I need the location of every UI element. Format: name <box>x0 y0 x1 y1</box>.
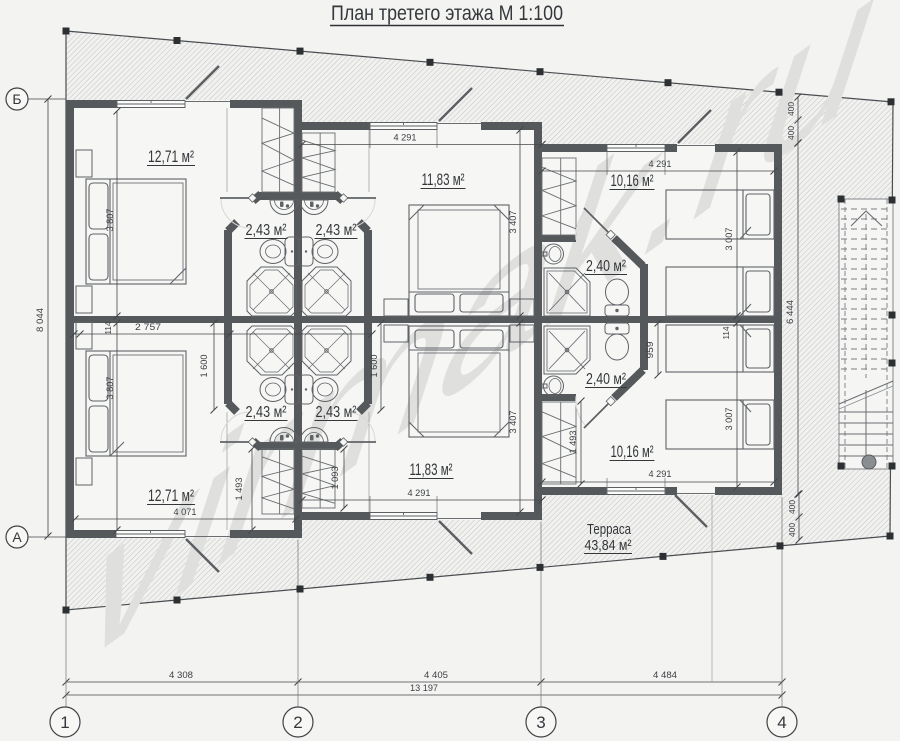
svg-text:4: 4 <box>777 713 786 732</box>
svg-text:114: 114 <box>721 326 731 339</box>
svg-text:2,40 м²: 2,40 м² <box>586 258 627 275</box>
svg-text:1 600: 1 600 <box>369 355 380 378</box>
svg-text:400: 400 <box>786 102 796 116</box>
svg-text:3 407: 3 407 <box>508 211 519 234</box>
svg-text:1 600: 1 600 <box>199 355 210 378</box>
svg-text:3: 3 <box>536 713 545 732</box>
svg-text:3 807: 3 807 <box>105 377 116 400</box>
svg-text:400: 400 <box>787 523 797 537</box>
svg-text:43,84 м²: 43,84 м² <box>585 537 632 554</box>
svg-text:12,71 м²: 12,71 м² <box>148 486 194 505</box>
svg-text:2,43 м²: 2,43 м² <box>316 222 358 239</box>
svg-text:4 291: 4 291 <box>408 488 431 499</box>
svg-text:10,16 м²: 10,16 м² <box>611 442 654 461</box>
svg-text:400: 400 <box>787 500 797 514</box>
svg-text:2,43 м²: 2,43 м² <box>316 404 358 421</box>
svg-text:2,43 м²: 2,43 м² <box>246 222 288 239</box>
svg-text:10,16 м²: 10,16 м² <box>611 171 654 190</box>
svg-text:4 291: 4 291 <box>649 159 672 170</box>
svg-text:1 093: 1 093 <box>330 467 341 490</box>
svg-text:4 291: 4 291 <box>649 469 672 480</box>
svg-text:А: А <box>12 529 22 545</box>
svg-text:4 071: 4 071 <box>174 507 197 518</box>
svg-text:Терраса: Терраса <box>587 521 631 538</box>
svg-text:Б: Б <box>12 91 21 107</box>
svg-text:2,40 м²: 2,40 м² <box>586 371 627 388</box>
svg-text:1: 1 <box>60 713 69 732</box>
svg-text:3 407: 3 407 <box>508 411 519 434</box>
svg-text:8 044: 8 044 <box>35 308 46 332</box>
svg-text:13 197: 13 197 <box>410 683 438 694</box>
svg-text:1 493: 1 493 <box>234 478 245 501</box>
svg-text:114: 114 <box>103 321 113 334</box>
svg-text:4 308: 4 308 <box>169 670 193 681</box>
svg-text:3 007: 3 007 <box>724 228 735 251</box>
svg-text:3 007: 3 007 <box>724 408 735 431</box>
svg-text:11,83 м²: 11,83 м² <box>422 170 465 189</box>
svg-text:11,83 м²: 11,83 м² <box>410 460 453 479</box>
svg-text:400: 400 <box>786 126 796 140</box>
svg-text:2: 2 <box>293 713 302 732</box>
svg-text:4 484: 4 484 <box>653 670 677 681</box>
svg-text:2,43 м²: 2,43 м² <box>246 404 288 421</box>
svg-text:4 405: 4 405 <box>424 670 448 681</box>
svg-text:1 493: 1 493 <box>568 431 579 454</box>
svg-text:2 757: 2 757 <box>135 322 161 333</box>
svg-text:3 807: 3 807 <box>105 209 116 232</box>
svg-text:6 444: 6 444 <box>785 300 796 324</box>
svg-text:4 291: 4 291 <box>394 133 417 144</box>
svg-text:959: 959 <box>645 342 656 359</box>
svg-text:План третего этажа М 1:100: План третего этажа М 1:100 <box>331 2 563 25</box>
svg-text:12,71 м²: 12,71 м² <box>148 147 194 166</box>
